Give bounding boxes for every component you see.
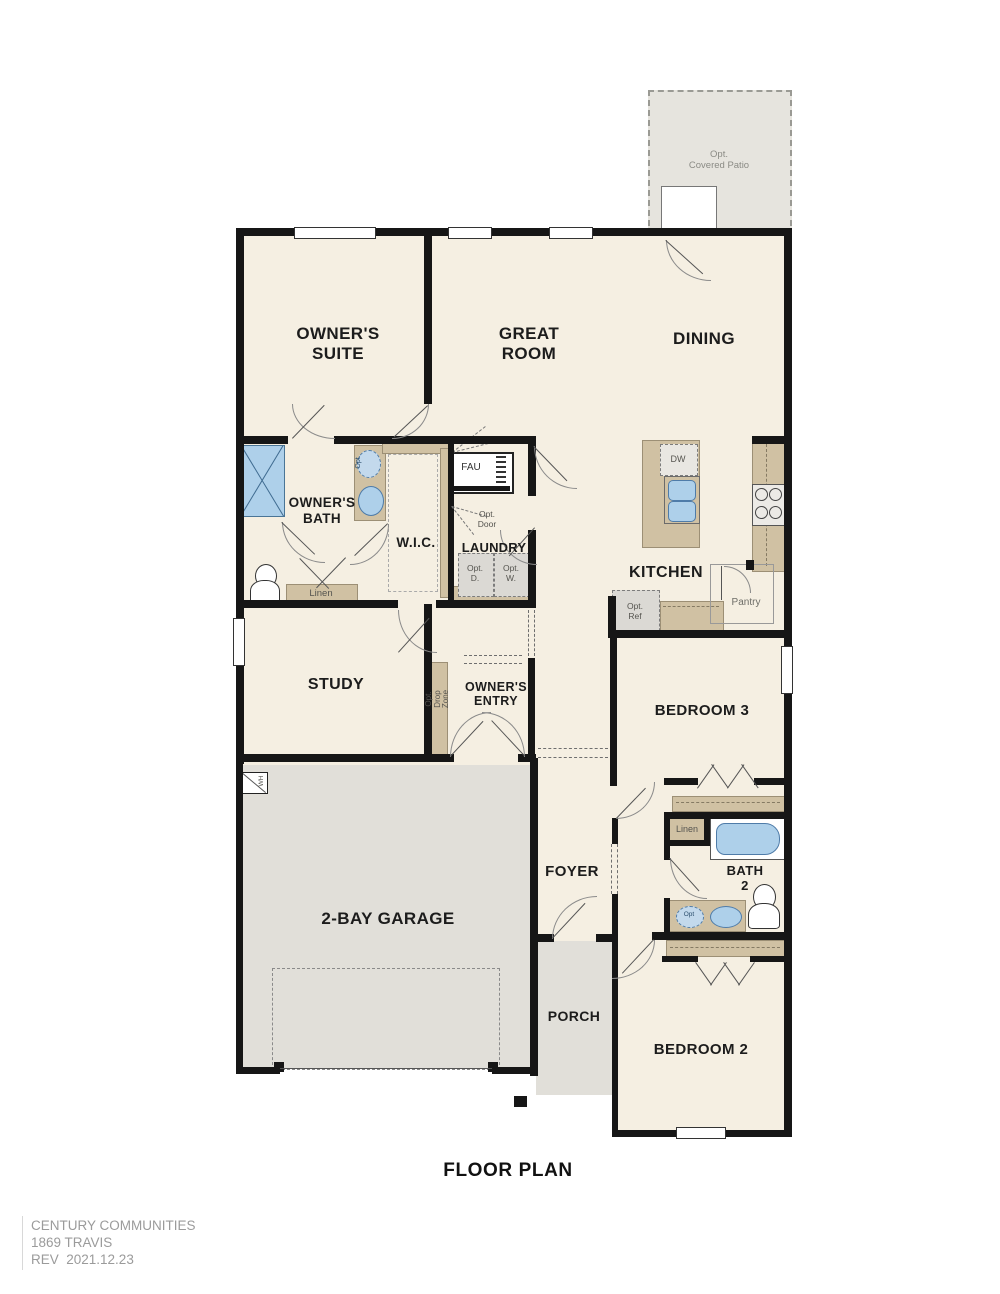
label-opt-washer: Opt. W. [494, 562, 528, 586]
wall [664, 812, 792, 819]
room-label-foyer: FOYER [522, 861, 622, 883]
bedroom2-shelf-line [670, 947, 780, 948]
window [676, 1127, 726, 1139]
label-fau: FAU [452, 460, 490, 476]
garage-door-outline [272, 968, 500, 1070]
room-label-great-room: GREAT ROOM [459, 318, 599, 370]
window [233, 618, 245, 666]
wall [334, 436, 432, 444]
wall [530, 758, 538, 1076]
floor-plan-sheet: OWNER'S SUITE GREAT ROOM DINING OWNER'S … [0, 0, 1000, 1294]
bath2-sink [710, 906, 742, 928]
wall [652, 932, 792, 940]
cased-opening-hall [528, 610, 535, 656]
burner-2 [769, 488, 782, 501]
footer-plan-name: 1869 TRAVIS [31, 1235, 331, 1252]
burner-4 [769, 506, 782, 519]
label-linen-owners: Linen [286, 587, 356, 601]
wall [436, 600, 536, 608]
toilet-owners-bath [250, 564, 280, 604]
label-wh: WH [256, 773, 268, 789]
wall [608, 630, 792, 638]
room-label-porch: PORCH [524, 1005, 624, 1027]
island-sink-bowl-1 [668, 480, 696, 501]
island-sink-bowl-2 [668, 501, 696, 522]
wall [448, 486, 510, 491]
garage-door-sill [280, 1068, 492, 1069]
room-label-study: STUDY [276, 673, 396, 697]
window [294, 227, 376, 239]
bedroom2-closet-shelf [666, 940, 786, 957]
wall [664, 812, 670, 860]
room-label-dining: DINING [634, 326, 774, 352]
wall [612, 894, 618, 938]
wall [752, 436, 792, 444]
fau-vent [496, 456, 506, 486]
label-opt-sink-bath2: Opt [676, 909, 702, 921]
wall [612, 818, 618, 844]
wall [754, 778, 786, 785]
wall [664, 778, 698, 785]
window [781, 646, 793, 694]
burner-3 [755, 506, 768, 519]
wall [530, 934, 554, 942]
wall [664, 840, 710, 846]
label-opt-door: Opt. Door [467, 508, 507, 532]
room-label-owners-entry: OWNER'S ENTRY [450, 672, 542, 716]
wall [236, 754, 454, 762]
label-opt-covered-patio: Opt. Covered Patio [659, 147, 779, 175]
wic-dashed-outline [388, 454, 438, 592]
wall [662, 956, 698, 962]
wall [424, 436, 536, 444]
label-linen-bath2: Linen [668, 822, 706, 836]
wall [236, 758, 243, 1074]
wall [746, 560, 754, 570]
room-label-bath2: BATH 2 [713, 858, 777, 900]
room-label-owners-suite: OWNER'S SUITE [258, 318, 418, 370]
bedroom3-shelf-line [676, 802, 780, 803]
wall [750, 956, 790, 962]
cased-opening-foyer [538, 748, 608, 758]
label-opt-sink-owners: Opt. [353, 451, 365, 473]
wall [236, 600, 398, 608]
bathtub [716, 823, 780, 855]
window [448, 227, 492, 239]
label-pantry: Pantry [716, 596, 776, 610]
room-label-garage: 2-BAY GARAGE [288, 906, 488, 932]
room-label-kitchen: KITCHEN [606, 561, 726, 585]
window [549, 227, 593, 239]
bedroom3-closet-shelf [672, 796, 786, 812]
label-opt-ref: Opt. Ref [612, 600, 658, 624]
footer-block: CENTURY COMMUNITIES 1869 TRAVIS REV 2021… [31, 1218, 331, 1269]
wall [424, 228, 432, 404]
wall [610, 630, 617, 786]
wall [236, 1067, 280, 1074]
wall [236, 228, 244, 764]
porch-step-marker [514, 1096, 527, 1107]
room-label-wic: W.I.C. [376, 532, 456, 554]
cased-opening-entry [464, 655, 522, 664]
footer-divider [22, 1216, 23, 1270]
room-label-bedroom2: BEDROOM 2 [631, 1039, 771, 1061]
label-dw: DW [660, 452, 696, 466]
room-label-bedroom3: BEDROOM 3 [632, 700, 772, 722]
label-opt-dryer: Opt. D. [458, 562, 492, 586]
footer-revision: REV 2021.12.23 [31, 1252, 331, 1269]
footer-company: CENTURY COMMUNITIES [31, 1218, 331, 1235]
room-label-owners-bath: OWNER'S BATH [276, 488, 368, 534]
room-label-laundry: LAUNDRY [446, 538, 542, 558]
wall [236, 436, 288, 444]
label-opt-drop-zone: Opt. Drop Zone [423, 677, 453, 721]
wall [596, 934, 612, 942]
page-title: FLOOR PLAN [0, 1158, 1000, 1184]
burner-1 [755, 488, 768, 501]
